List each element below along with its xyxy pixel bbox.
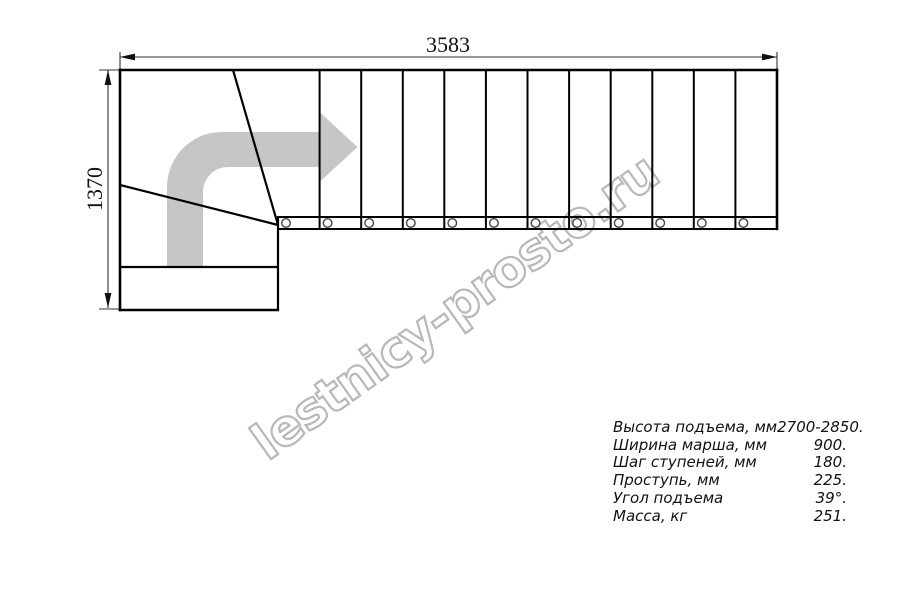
spec-value: 39°.	[816, 490, 847, 508]
spec-table: Высота подъема, мм 2700-2850. Ширина мар…	[613, 419, 847, 525]
drawing-canvas: { "drawing": { "top_dimension": "3583", …	[0, 0, 900, 600]
spec-row: Высота подъема, мм 2700-2850.	[613, 419, 847, 437]
fastener-circle	[490, 219, 499, 228]
spec-row: Ширина марша, мм 900.	[613, 437, 847, 455]
fastener-circle	[573, 219, 582, 228]
spec-row: Шаг ступеней, мм 180.	[613, 454, 847, 472]
dim-arrowhead-right	[762, 54, 777, 61]
left-dimension-label: 1370	[82, 167, 107, 211]
fastener-circles	[282, 219, 748, 228]
spec-label: Угол подъема	[613, 490, 723, 508]
spec-label: Масса, кг	[613, 508, 687, 526]
spec-label: Высота подъема, мм	[613, 419, 777, 437]
fastener-circle	[739, 219, 748, 228]
direction-arrow	[167, 113, 358, 267]
dim-arrowhead-up	[105, 70, 112, 85]
fastener-circle	[365, 219, 374, 228]
dim-arrowhead-left	[120, 54, 135, 61]
spec-value: 251.	[814, 508, 847, 526]
tread-lines	[320, 70, 736, 229]
fastener-circle	[698, 219, 707, 228]
spec-value: 2700-2850.	[777, 419, 864, 437]
stair-outline	[119, 69, 779, 312]
top-dimension-label: 3583	[426, 32, 470, 57]
spec-value: 900.	[814, 437, 847, 455]
spec-label: Ширина марша, мм	[613, 437, 767, 455]
spec-row: Масса, кг 251.	[613, 508, 847, 526]
fastener-circle	[614, 219, 623, 228]
fastener-circle	[531, 219, 540, 228]
spec-row: Угол подъема 39°.	[613, 490, 847, 508]
dim-arrowhead-down	[105, 293, 112, 308]
fastener-circle	[323, 219, 332, 228]
fastener-circle	[407, 219, 416, 228]
spec-row: Проступь, мм 225.	[613, 472, 847, 490]
fastener-circle	[282, 219, 291, 228]
spec-value: 180.	[814, 454, 847, 472]
spec-label: Шаг ступеней, мм	[613, 454, 757, 472]
spec-value: 225.	[814, 472, 847, 490]
fastener-circle	[656, 219, 665, 228]
staircase-plan-drawing: lestnicy-prosto.ru 3583 1370	[0, 0, 900, 600]
spec-label: Проступь, мм	[613, 472, 720, 490]
fastener-circle	[448, 219, 457, 228]
